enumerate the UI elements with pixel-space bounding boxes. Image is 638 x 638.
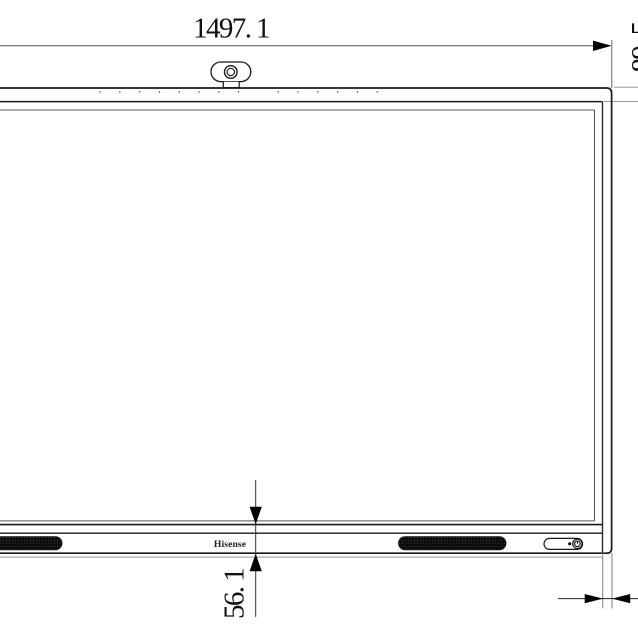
svg-text:Hisense: Hisense (214, 539, 247, 550)
svg-text:1497. 1: 1497. 1 (193, 13, 269, 45)
svg-text:56. 1: 56. 1 (219, 569, 251, 619)
svg-text:89. 5: 89. 5 (626, 21, 638, 72)
